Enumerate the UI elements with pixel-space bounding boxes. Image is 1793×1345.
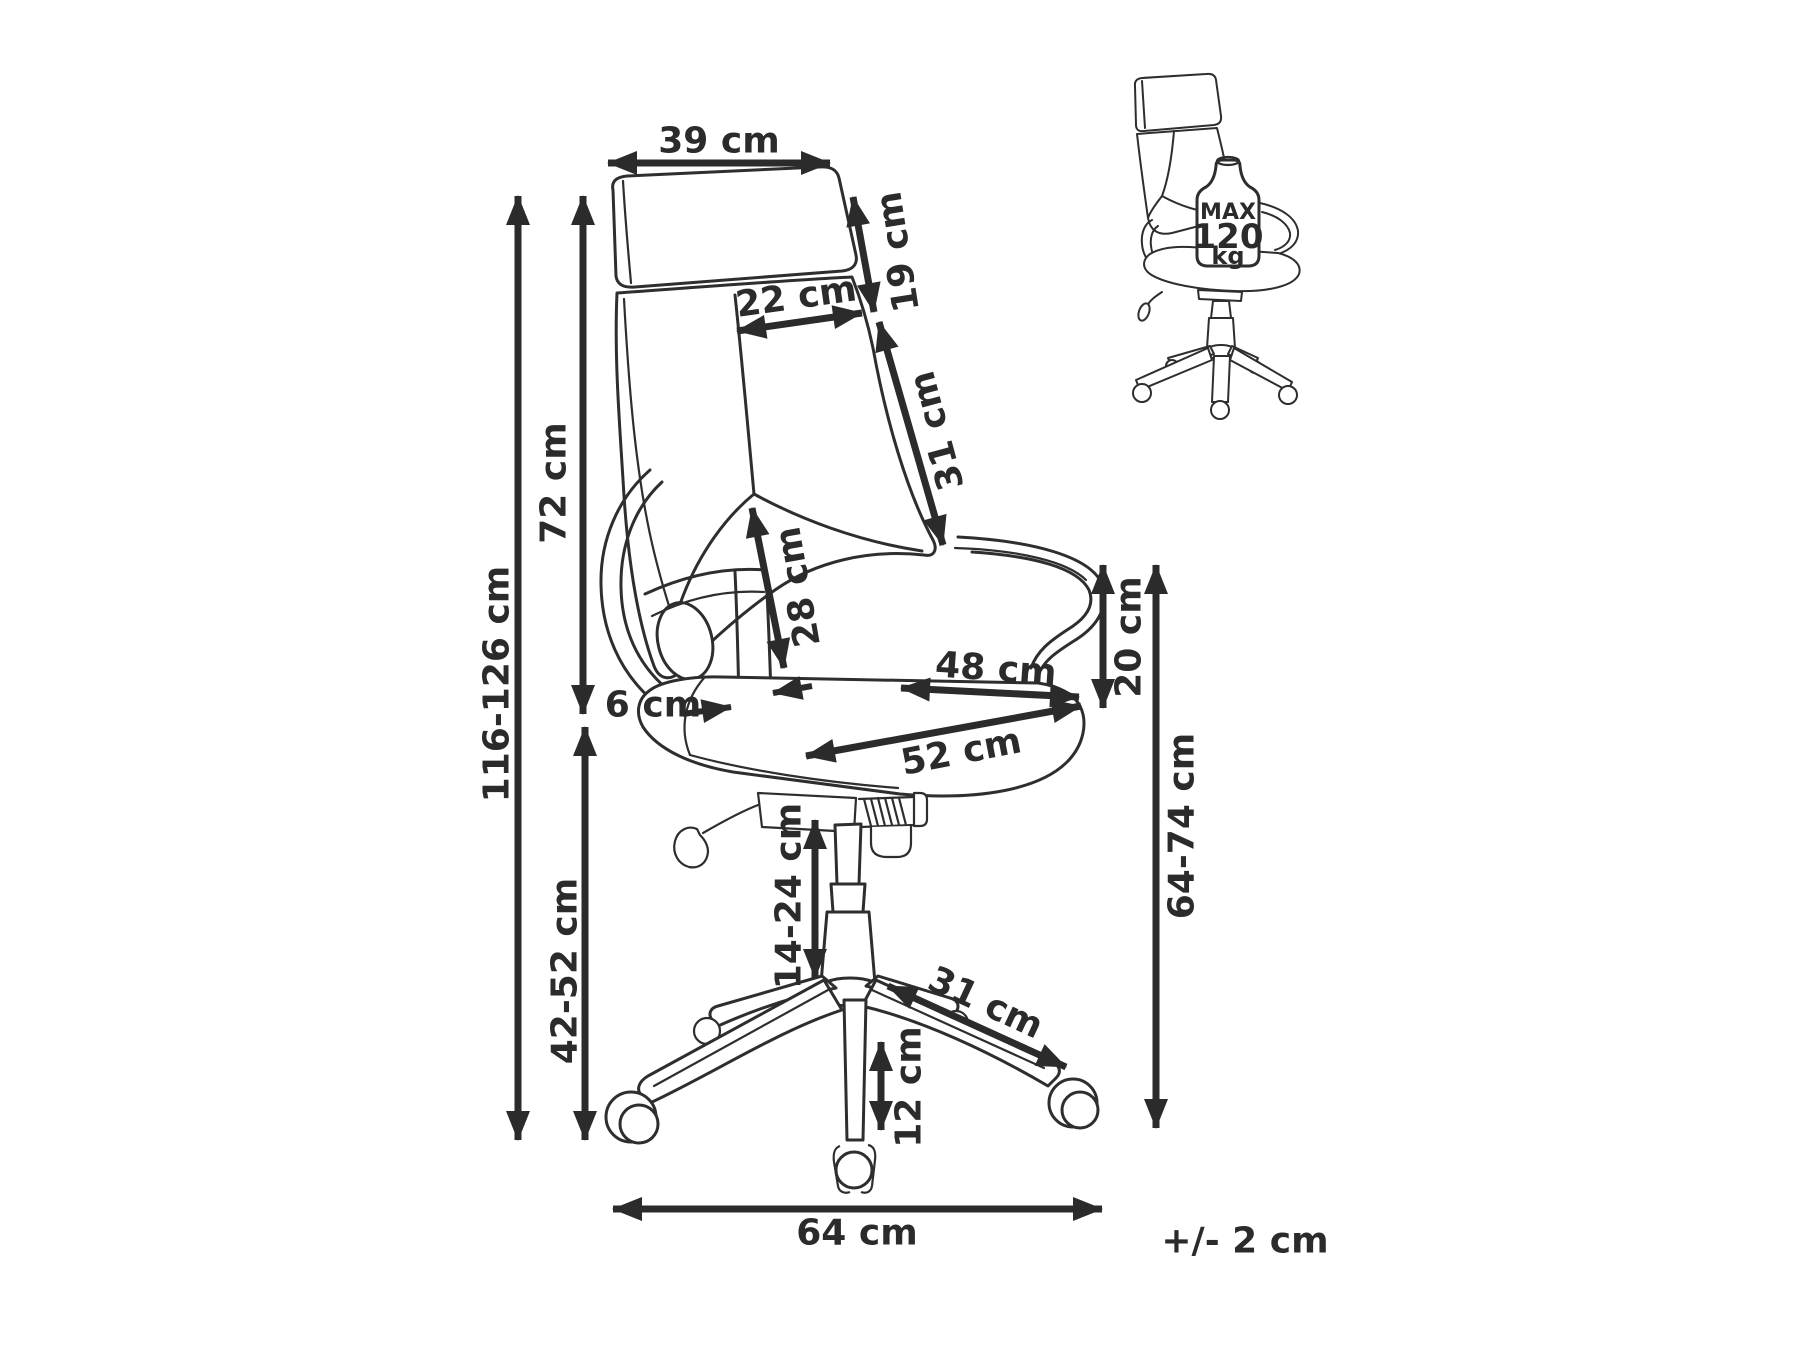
thumb-headrest (1135, 74, 1221, 131)
dim-backrest-height-label: 72 cm (534, 422, 575, 543)
tension-knob-cap (914, 793, 927, 826)
tension-knob-tab (871, 826, 911, 857)
dim-caster-height-label: 12 cm (889, 1026, 930, 1147)
gas-lift-lower (821, 912, 875, 983)
chair-dimension-diagram: 39 cm 19 cm 22 cm 31 cm 28 cm 72 cm 116-… (0, 0, 1793, 1345)
weight-unit-label: kg (1211, 242, 1244, 270)
dim-headrest-width-label: 39 cm (658, 121, 779, 162)
tolerance-note: +/- 2 cm (1161, 1221, 1328, 1262)
thumb-leg-front (1212, 356, 1230, 402)
thumb-column-lower (1207, 318, 1235, 348)
thumb-mechanism (1198, 290, 1242, 301)
caster-front-right-wheel (1062, 1092, 1098, 1128)
thumb-caster-left (1133, 384, 1151, 402)
gas-lift-upper (835, 824, 861, 884)
dim-armrest-width-label: 6 cm (605, 685, 701, 726)
base-leg-front-center (844, 1000, 866, 1140)
dim-seat-width-label: 48 cm (934, 644, 1058, 693)
dim-seat-height-label: 42-52 cm (545, 878, 586, 1065)
thumb-column-upper (1211, 301, 1231, 318)
gas-lift-middle (831, 884, 865, 912)
dim-base-width-label: 64 cm (796, 1213, 917, 1254)
thumb-caster-right (1279, 386, 1297, 404)
headrest-outline (613, 167, 857, 287)
caster-front-left-wheel (620, 1105, 658, 1143)
thumb-caster-front (1211, 401, 1229, 419)
dim-armrest-above-seat-label: 20 cm (1109, 576, 1150, 697)
dim-total-height-label: 116-126 cm (477, 566, 518, 803)
caster-front-center-wheel (836, 1152, 872, 1188)
dim-armrest-floor-height-label: 64-74 cm (1162, 733, 1203, 920)
dim-gas-lift-label: 14-24 cm (769, 803, 810, 990)
